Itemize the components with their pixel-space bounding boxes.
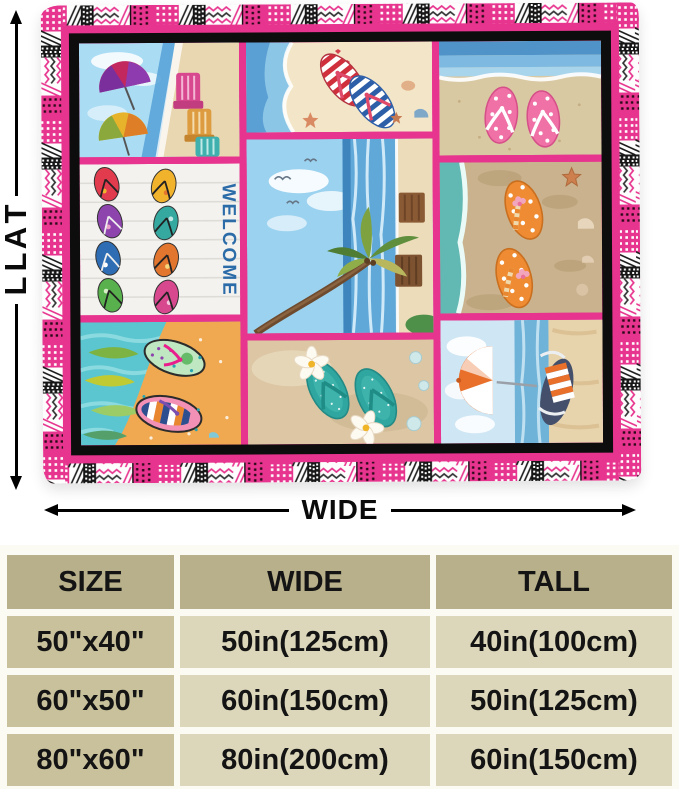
size-cell: 80"x60": [7, 734, 174, 786]
panel-orange-polkadot-flip-flops: [440, 162, 603, 314]
arrow-line-vertical: [15, 24, 18, 196]
arrow-line-horizontal: [58, 509, 289, 512]
arrowhead-down-icon: [10, 476, 22, 490]
wide-cell: 50in(125cm): [180, 616, 430, 668]
beach-flip-flop-blanket: WELCOME: [41, 2, 641, 483]
blanket-collage: WELCOME: [79, 41, 603, 446]
arrow-line-horizontal: [391, 509, 622, 512]
header-cell-tall: TALL: [436, 555, 672, 609]
welcome-text: WELCOME: [217, 168, 240, 313]
beach-chair-icon: [173, 73, 203, 109]
tall-cell: 50in(125cm): [436, 675, 672, 727]
arrowhead-up-icon: [10, 10, 22, 24]
beach-chair-icon: [399, 193, 425, 223]
panel-beach-umbrella-chair: [440, 320, 603, 444]
tall-cell: 40in(100cm): [436, 616, 672, 668]
panel-striped-flip-flops: [246, 42, 432, 133]
panel-beach-chairs-umbrellas: [79, 43, 240, 158]
beach-chair-icon: [195, 137, 219, 157]
panel-palm-tree-beach: [246, 139, 433, 334]
arrow-line-vertical: [15, 304, 18, 476]
wide-cell: 60in(150cm): [180, 675, 430, 727]
size-table: SIZE WIDE TALL 50"x40" 50in(125cm) 40in(…: [7, 555, 672, 786]
header-cell-size: SIZE: [7, 555, 174, 609]
tall-label: TALL: [0, 202, 33, 298]
tall-dimension-arrow: TALL: [3, 10, 29, 490]
blanket-dimension-figure: TALL: [0, 0, 679, 545]
size-table-section: SIZE WIDE TALL 50"x40" 50in(125cm) 40in(…: [0, 545, 679, 789]
panel-tropical-art-flip-flops: [80, 322, 241, 446]
tall-cell: 60in(150cm): [436, 734, 672, 786]
size-cell: 50"x40": [7, 616, 174, 668]
wide-dimension-arrow: WIDE: [44, 494, 636, 526]
panel-teal-plumeria-flip-flops: [248, 340, 435, 445]
arrowhead-right-icon: [622, 504, 636, 516]
size-cell: 60"x50": [7, 675, 174, 727]
wide-label: WIDE: [301, 494, 378, 526]
panel-welcome-flip-flops: WELCOME: [80, 164, 241, 316]
product-size-chart-image: TALL: [0, 0, 679, 789]
wide-cell: 80in(200cm): [180, 734, 430, 786]
arrowhead-left-icon: [44, 504, 58, 516]
header-cell-wide: WIDE: [180, 555, 430, 609]
panel-pink-polkadot-flip-flops: [439, 41, 602, 156]
